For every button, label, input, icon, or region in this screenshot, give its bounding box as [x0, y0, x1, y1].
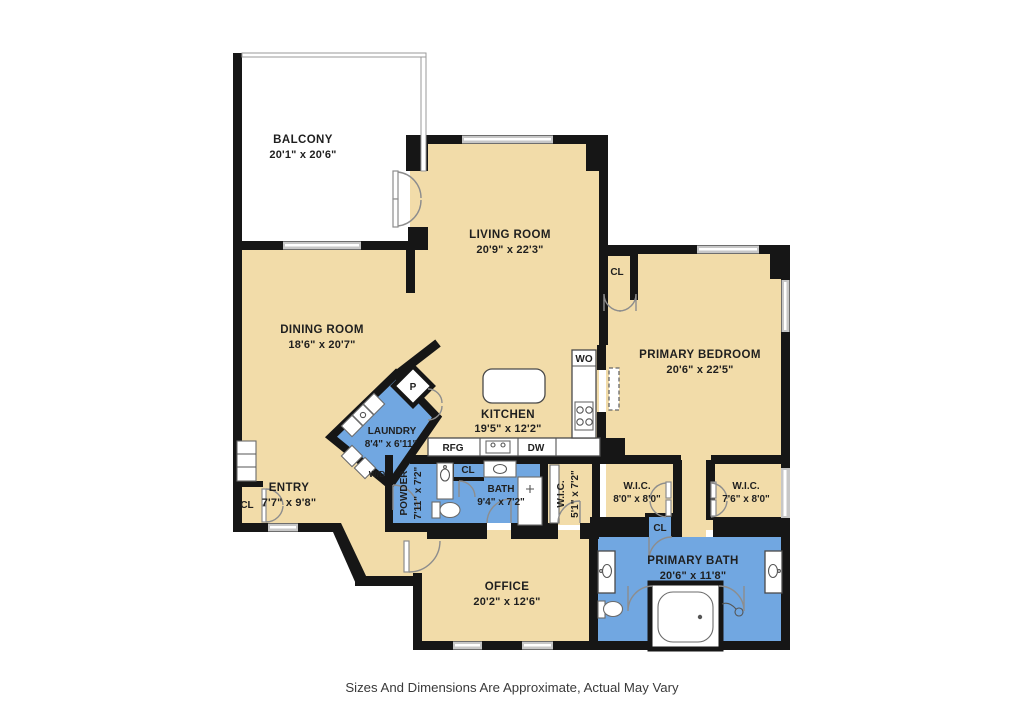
room-dims-wic-hall: 5'1" x 7'2": [570, 470, 581, 518]
wall-segment: [413, 573, 422, 650]
wall-segment: [589, 523, 598, 650]
room-dims-balcony: 20'1" x 20'6": [269, 149, 336, 161]
room-label-primary-bath: PRIMARY BATH: [647, 555, 738, 567]
room-label-dining: DINING ROOM: [280, 324, 364, 336]
cooktop: [575, 402, 593, 430]
room-label-laundry: LAUNDRY: [368, 426, 417, 437]
room-dims-living: 20'9" x 22'3": [476, 244, 543, 256]
powder-toilet-tank: [432, 502, 440, 518]
room-dims-laundry: 8'4" x 6'11": [365, 439, 418, 450]
room-dims-wic-left: 8'0" x 8'0": [613, 494, 661, 505]
wall-segment: [671, 517, 682, 537]
wall-segment: [427, 523, 487, 539]
refrigerator-label: RFG: [442, 443, 463, 454]
wall-segment: [589, 641, 652, 650]
room-dims-bath: 9'4" x 7'2": [477, 497, 525, 508]
room-dims-entry: 7'7" x 9'8": [262, 497, 317, 509]
wall-segment: [406, 247, 415, 293]
room-label-bath: BATH: [487, 484, 514, 495]
room-dims-primary-bedroom: 20'6" x 22'5": [666, 364, 733, 376]
room-label-powder: POWDER: [399, 470, 410, 516]
closet-label: CL: [610, 267, 623, 278]
wall-segment: [355, 576, 415, 586]
room-label-wic-left: W.I.C.: [623, 481, 650, 492]
powder-toilet: [440, 503, 460, 518]
wall-segment: [630, 248, 638, 300]
room-dims-wic-right: 7'6" x 8'0": [722, 494, 770, 505]
office-door-leaf: [404, 541, 409, 572]
entry-shelves: [237, 441, 256, 481]
washer-dryer-label: W/D: [369, 469, 386, 479]
kitchen-sink: [486, 441, 510, 453]
balcony-rail: [242, 53, 426, 57]
wall-segment: [711, 455, 790, 464]
room-label-balcony: BALCONY: [273, 134, 333, 146]
wall-segment: [413, 641, 597, 650]
bathtub: [658, 592, 713, 642]
room-label-wic-hall: W.I.C.: [556, 480, 567, 507]
wall-segment: [385, 523, 427, 532]
disclaimer-text: Sizes And Dimensions Are Approximate, Ac…: [345, 680, 679, 695]
kitchen-island: [483, 369, 545, 403]
room-dims-powder: 7'11" x 7'2": [413, 466, 424, 519]
room-label-office: OFFICE: [485, 581, 530, 593]
bath-vanity: [484, 461, 516, 477]
wall-segment: [385, 455, 393, 532]
wall-segment: [408, 227, 428, 250]
room-label-wic-right: W.I.C.: [732, 481, 759, 492]
closet-label: CL: [240, 500, 253, 511]
closet-label: CL: [653, 523, 666, 534]
room-label-living: LIVING ROOM: [469, 229, 551, 241]
primary-toilet: [604, 602, 623, 617]
room-dims-office: 20'2" x 12'6": [473, 596, 540, 608]
tub-drain: [698, 615, 702, 619]
wall-segment: [590, 517, 649, 537]
balcony-door-leaf: [393, 171, 398, 199]
balcony-door-leaf: [393, 199, 398, 227]
room-label-entry: ENTRY: [269, 482, 310, 494]
pocket-door: [609, 368, 619, 410]
wic-corridor-floor: [682, 455, 706, 537]
wall-segment: [597, 345, 606, 370]
wall-oven-label: WO: [575, 354, 592, 365]
wall-segment: [720, 641, 790, 650]
wall-segment: [673, 460, 682, 520]
wall-segment: [450, 477, 484, 481]
balcony-rail: [421, 57, 426, 171]
closet-label: CL: [461, 465, 474, 476]
wall-segment: [645, 513, 649, 537]
wall-segment: [599, 143, 608, 345]
room-label-primary-bedroom: PRIMARY BEDROOM: [639, 349, 761, 361]
room-dims-dining: 18'6" x 20'7": [288, 339, 355, 351]
dishwasher-label: DW: [528, 443, 545, 454]
room-dims-primary-bath: 20'6" x 11'8": [660, 570, 727, 582]
floor-plan: BALCONY 20'1" x 20'6" LIVING ROOM 20'9" …: [0, 0, 1024, 723]
floor-plan-page: BALCONY 20'1" x 20'6" LIVING ROOM 20'9" …: [0, 0, 1024, 723]
wall-segment: [599, 455, 681, 464]
room-label-kitchen: KITCHEN: [481, 409, 535, 421]
room-dims-kitchen: 19'5" x 12'2": [474, 423, 541, 435]
pantry-label: P: [410, 382, 417, 393]
wall-segment: [713, 517, 790, 537]
wall-segment: [233, 481, 263, 487]
